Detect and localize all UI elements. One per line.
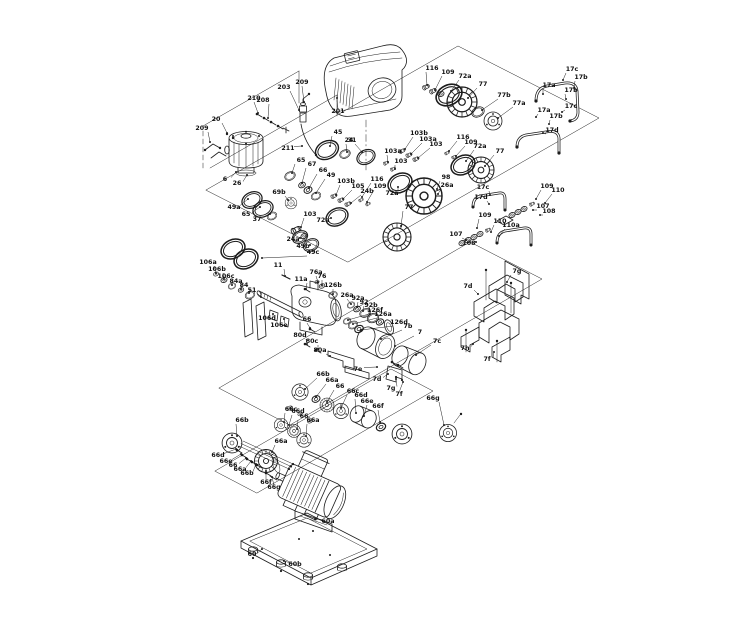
leader-arrow-dot [314, 518, 316, 520]
leader-arrow-dot [415, 354, 417, 356]
label-leader-line [346, 144, 347, 152]
part-label: 211 [281, 145, 294, 152]
part-label: 80a [313, 347, 326, 354]
part-label: 7g [513, 268, 522, 275]
part-label: 116 [425, 65, 439, 72]
leader-arrow-dot [300, 226, 302, 228]
leader-arrow-dot [476, 227, 478, 229]
label-leader-line [336, 185, 340, 195]
leader-arrow-dot [426, 84, 428, 86]
part-label: 72a [458, 73, 471, 80]
part-label: 17b [574, 74, 588, 81]
leader-arrow-dot [301, 182, 303, 184]
label-leader-line [262, 256, 307, 258]
leader-arrow-dot [366, 201, 368, 203]
leader-arrow-dot [380, 338, 382, 340]
part-label: 201 [331, 108, 344, 115]
label-leader-line [292, 164, 295, 173]
part-label: 66b [235, 417, 249, 424]
part-label: 77 [479, 81, 488, 88]
part-label: 11 [274, 262, 283, 269]
label-leader-line [284, 269, 285, 276]
leader-arrow-dot [376, 366, 378, 368]
leader-arrow-dot [395, 378, 397, 380]
leader-arrow-dot [260, 296, 262, 298]
leader-arrow-dot [336, 97, 338, 99]
leader-arrow-dot [284, 275, 286, 277]
leader-arrow-dot [303, 101, 305, 103]
part-label: 26a [440, 182, 453, 189]
part-label: 103a [384, 148, 401, 155]
leader-arrow-dot [465, 160, 467, 162]
leader-arrow-dot [361, 151, 363, 153]
leader-arrow-dot [283, 560, 285, 562]
leader-arrow-dot [309, 327, 311, 329]
label-leader-line [246, 461, 251, 468]
part-label: 203 [277, 84, 290, 91]
leader-arrow-dot [467, 97, 469, 99]
label-leader-line [449, 141, 457, 151]
exploded-parts-diagram: 2082032092012102020921145316567664962649… [0, 0, 752, 632]
leader-arrow-dot [271, 451, 273, 453]
leader-arrow-dot [245, 457, 247, 459]
part-label: 7d [464, 283, 473, 290]
leader-arrow-dot [342, 198, 344, 200]
part-label: 126a [374, 311, 391, 318]
leader-arrow-dot [335, 194, 337, 196]
leader-arrow-dot [404, 148, 406, 150]
part-label: 109 [478, 212, 491, 219]
leader-arrow-dot [352, 323, 354, 325]
part-label: 106d [258, 315, 276, 322]
leader-arrow-dot [340, 407, 342, 409]
part-label: 209 [295, 79, 308, 86]
leader-arrow-dot [539, 214, 541, 216]
part-label: 66a [306, 417, 319, 424]
label-leader-line [284, 413, 285, 422]
leader-arrow-dot [488, 203, 490, 205]
leader-arrow-dot [298, 109, 300, 111]
part-labels-layer: 2082032092012102020921145316567664962649… [195, 65, 588, 568]
leader-arrow-dot [362, 310, 364, 312]
leader-arrow-dot [321, 284, 323, 286]
part-label: 66b [240, 470, 254, 477]
leader-arrow-dot [317, 281, 319, 283]
part-label: 66a [274, 438, 287, 445]
part-label: 7f [395, 391, 402, 398]
label-leader-line [364, 405, 367, 416]
leader-arrow-dot [350, 202, 352, 204]
leader-arrow-dot [506, 281, 508, 283]
leader-arrow-dot [347, 319, 349, 321]
leader-arrow-dot [326, 401, 328, 403]
leader-arrow-dot [443, 424, 445, 426]
leader-arrow-dot [484, 165, 486, 167]
part-label: 76 [318, 273, 327, 280]
part-label: 103 [429, 141, 442, 148]
leader-arrow-dot [387, 161, 389, 163]
leader-arrow-dot [283, 318, 285, 320]
label-leader-line [309, 174, 317, 188]
part-label: 106e [270, 322, 287, 329]
label-leader-line [416, 345, 431, 355]
leader-arrow-dot [532, 209, 534, 211]
leader-arrow-dot [493, 351, 495, 353]
part-label: 109 [441, 69, 454, 76]
leader-arrow-dot [562, 79, 564, 81]
label-leader-line [439, 402, 444, 425]
part-label: 69b [272, 189, 286, 196]
label-leader-line [498, 107, 513, 118]
part-label: 17b [564, 87, 578, 94]
part-label: 7h [461, 345, 470, 352]
leader-arrow-dot [455, 155, 457, 157]
label-leader-line [491, 225, 494, 232]
leader-arrow-dot [288, 424, 290, 426]
clamp-parts [461, 261, 529, 362]
leader-arrow-dot [410, 153, 412, 155]
part-label: 6 [223, 176, 228, 183]
part-label: 7d [373, 376, 382, 383]
part-label: 106a [199, 259, 216, 266]
leader-arrow-dot [308, 187, 310, 189]
motor-control-unit [324, 45, 406, 117]
leader-arrow-dot [436, 188, 438, 190]
label-leader-line [355, 144, 362, 152]
part-label: 17d [545, 127, 558, 134]
pump-casing [225, 131, 263, 176]
label-leader-line [301, 218, 304, 227]
part-label: 80d [293, 332, 306, 339]
leader-arrow-dot [477, 293, 479, 295]
part-label: 17c [566, 66, 579, 73]
label-leader-line [353, 318, 377, 324]
label-leader-line [239, 458, 246, 464]
label-leader-line [302, 168, 306, 183]
part-label: 110a [502, 222, 519, 229]
leader-arrow-dot [394, 345, 396, 347]
leader-arrow-dot [472, 343, 474, 345]
part-label: 106b [208, 266, 226, 273]
part-label: 80c [306, 338, 319, 345]
leader-arrow-dot [332, 293, 334, 295]
leader-arrow-dot [329, 355, 331, 357]
label-leader-line [381, 330, 402, 339]
leader-arrow-dot [283, 421, 285, 423]
leader-arrow-dot [304, 388, 306, 390]
part-label: 49 [327, 172, 336, 179]
part-label: 108 [462, 240, 475, 247]
leader-arrow-dot [379, 421, 381, 423]
leader-arrow-dot [265, 470, 267, 472]
leader-arrow-dot [448, 150, 450, 152]
leader-arrow-dot [247, 198, 249, 200]
diagram-canvas: 2082032092012102020921145316567664962649… [0, 0, 752, 632]
leader-arrow-dot [450, 90, 452, 92]
part-label: 51 [248, 287, 257, 294]
label-leader-line [289, 415, 292, 425]
part-label: 65 [297, 157, 306, 164]
part-label: 11a [294, 276, 307, 283]
part-label: 49c [307, 249, 320, 256]
leader-arrow-dot [548, 123, 550, 125]
leader-arrow-dot [535, 116, 537, 118]
label-leader-line [378, 410, 380, 422]
leader-arrow-dot [497, 117, 499, 119]
leader-arrow-dot [315, 192, 317, 194]
part-label: 98 [442, 174, 451, 181]
part-label: 7 [418, 329, 422, 336]
label-leader-line [411, 143, 422, 154]
part-label: 45 [334, 129, 343, 136]
leader-arrow-dot [361, 196, 363, 198]
part-label: 7b [404, 323, 413, 330]
leader-arrow-dot [437, 193, 439, 195]
part-label: 17b [549, 113, 563, 120]
part-label: 77 [405, 204, 414, 211]
part-label: 67 [308, 161, 317, 168]
part-label: 24a [286, 236, 299, 243]
leader-arrow-dot [565, 98, 567, 100]
label-leader-line [396, 379, 397, 387]
part-label: 60 [248, 551, 257, 558]
part-label: 107 [449, 231, 462, 238]
part-label: 72a [473, 143, 486, 150]
leader-arrow-dot [535, 198, 537, 200]
label-leader-line [341, 395, 347, 408]
part-label: 7g [387, 385, 396, 392]
leader-arrow-dot [346, 151, 348, 153]
leader-arrow-dot [387, 373, 389, 375]
part-label: 66 [303, 316, 312, 323]
label-leader-line [405, 137, 413, 149]
leader-arrow-dot [305, 288, 307, 290]
label-leader-line [208, 132, 210, 142]
leader-arrow-dot [301, 145, 303, 147]
part-label: 20 [212, 116, 221, 123]
label-leader-line [316, 384, 326, 397]
label-leader-line [305, 378, 317, 389]
leader-arrow-dot [402, 381, 404, 383]
leader-arrow-dot [400, 225, 402, 227]
label-leader-line [361, 326, 393, 330]
leader-arrow-dot [240, 453, 242, 455]
part-label: 108 [542, 208, 555, 215]
part-label: 109 [373, 183, 386, 190]
part-label: 72a [316, 217, 329, 224]
part-label: 103 [394, 158, 407, 165]
leader-arrow-dot [255, 463, 257, 465]
label-leader-line [306, 424, 307, 436]
part-label: 103 [303, 211, 316, 218]
leader-arrow-dot [257, 112, 259, 114]
leader-arrow-dot [226, 132, 228, 134]
leader-arrow-dot [267, 117, 269, 119]
leader-arrow-dot [542, 132, 544, 134]
leader-arrow-dot [481, 109, 483, 111]
leader-arrow-dot [498, 235, 500, 237]
label-leader-line [294, 146, 302, 147]
leader-arrow-dot [350, 303, 352, 305]
leader-arrow-dot [250, 460, 252, 462]
leader-arrow-dot [261, 257, 263, 259]
part-label: 7e [354, 366, 363, 373]
part-label: 17c [477, 184, 490, 191]
leader-arrow-dot [542, 93, 544, 95]
label-leader-line [545, 194, 552, 203]
part-label: 17c [565, 103, 578, 110]
leader-arrow-dot [305, 435, 307, 437]
leader-arrow-dot [291, 172, 293, 174]
leader-arrow-dot [369, 313, 371, 315]
part-label: 72a [385, 190, 398, 197]
leader-arrow-dot [261, 548, 263, 550]
part-label: 210 [247, 95, 261, 102]
leader-arrow-dot [397, 186, 399, 188]
leader-arrow-dot [355, 412, 357, 414]
label-leader-line [482, 99, 498, 110]
leader-arrow-dot [287, 199, 289, 201]
leader-arrow-dot [236, 435, 238, 437]
part-label: 77a [512, 100, 525, 107]
leader-arrow-dot [315, 396, 317, 398]
part-label: 66f [372, 403, 384, 410]
leader-arrow-dot [434, 89, 436, 91]
leader-arrow-dot [489, 194, 491, 196]
part-label: 77 [496, 148, 505, 155]
leader-arrow-dot [235, 171, 237, 173]
leader-arrow-dot [417, 157, 419, 159]
leader-arrow-dot [330, 217, 332, 219]
part-label: 66g [426, 395, 439, 402]
part-label: 65 [242, 211, 251, 218]
leader-arrow-dot [329, 145, 331, 147]
label-leader-line [272, 445, 275, 452]
leader-arrow-dot [296, 428, 298, 430]
part-label: 116 [370, 176, 384, 183]
leader-arrow-dot [271, 476, 273, 478]
part-label: 92b [364, 302, 378, 309]
label-leader-line [222, 123, 227, 133]
part-label: 24 [345, 137, 354, 144]
part-label: 7c [433, 338, 441, 345]
part-label: 60b [288, 561, 302, 568]
part-label: 17a [542, 82, 555, 89]
leader-arrow-dot [363, 415, 365, 417]
part-label: 66 [336, 383, 345, 390]
label-leader-line [563, 73, 566, 80]
leader-arrow-dot [269, 213, 271, 215]
label-leader-line [343, 190, 352, 199]
part-label: 60a [321, 518, 334, 525]
label-leader-line [290, 91, 299, 110]
leader-arrow-dot [490, 231, 492, 233]
label-leader-line [426, 72, 427, 85]
label-leader-line [316, 179, 325, 193]
part-label: 209 [195, 125, 208, 132]
label-leader-line [364, 367, 377, 368]
part-label: 37 [253, 216, 262, 223]
leader-arrow-dot [259, 206, 261, 208]
part-label: 77b [497, 92, 511, 99]
label-leader-line [268, 104, 269, 118]
part-label: 49a [227, 204, 240, 211]
part-label: 26 [233, 180, 242, 187]
part-label: 126b [324, 282, 342, 289]
part-label: 7f [483, 356, 490, 363]
leader-arrow-dot [246, 174, 248, 176]
label-leader-line [477, 219, 479, 228]
label-leader-line [231, 172, 236, 178]
leader-arrow-dot [209, 141, 211, 143]
leader-arrow-dot [235, 448, 237, 450]
part-label: 110 [551, 187, 565, 194]
leader-arrow-dot [394, 168, 396, 170]
part-label: 17d [474, 194, 487, 201]
part-label: 66g [267, 484, 280, 491]
label-leader-line [418, 148, 430, 158]
label-leader-line [395, 336, 414, 346]
leader-arrow-dot [360, 329, 362, 331]
leader-arrow-dot [356, 306, 358, 308]
label-leader-line [536, 190, 541, 199]
